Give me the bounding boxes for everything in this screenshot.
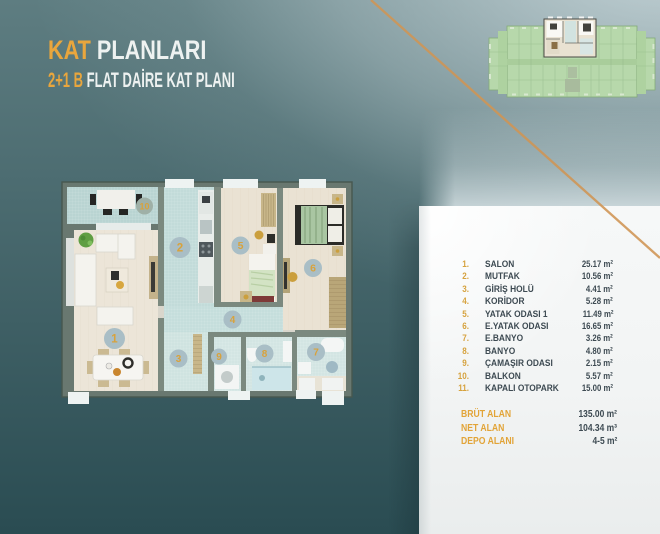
svg-text:5: 5 xyxy=(238,240,244,252)
svg-text:3: 3 xyxy=(176,354,182,365)
svg-text:1: 1 xyxy=(111,334,118,346)
svg-text:8: 8 xyxy=(262,349,268,360)
svg-text:4: 4 xyxy=(230,315,236,326)
svg-text:10: 10 xyxy=(139,202,149,212)
svg-text:6: 6 xyxy=(310,263,316,275)
svg-text:7: 7 xyxy=(313,348,319,359)
svg-text:2: 2 xyxy=(177,243,183,255)
svg-text:9: 9 xyxy=(216,352,222,363)
